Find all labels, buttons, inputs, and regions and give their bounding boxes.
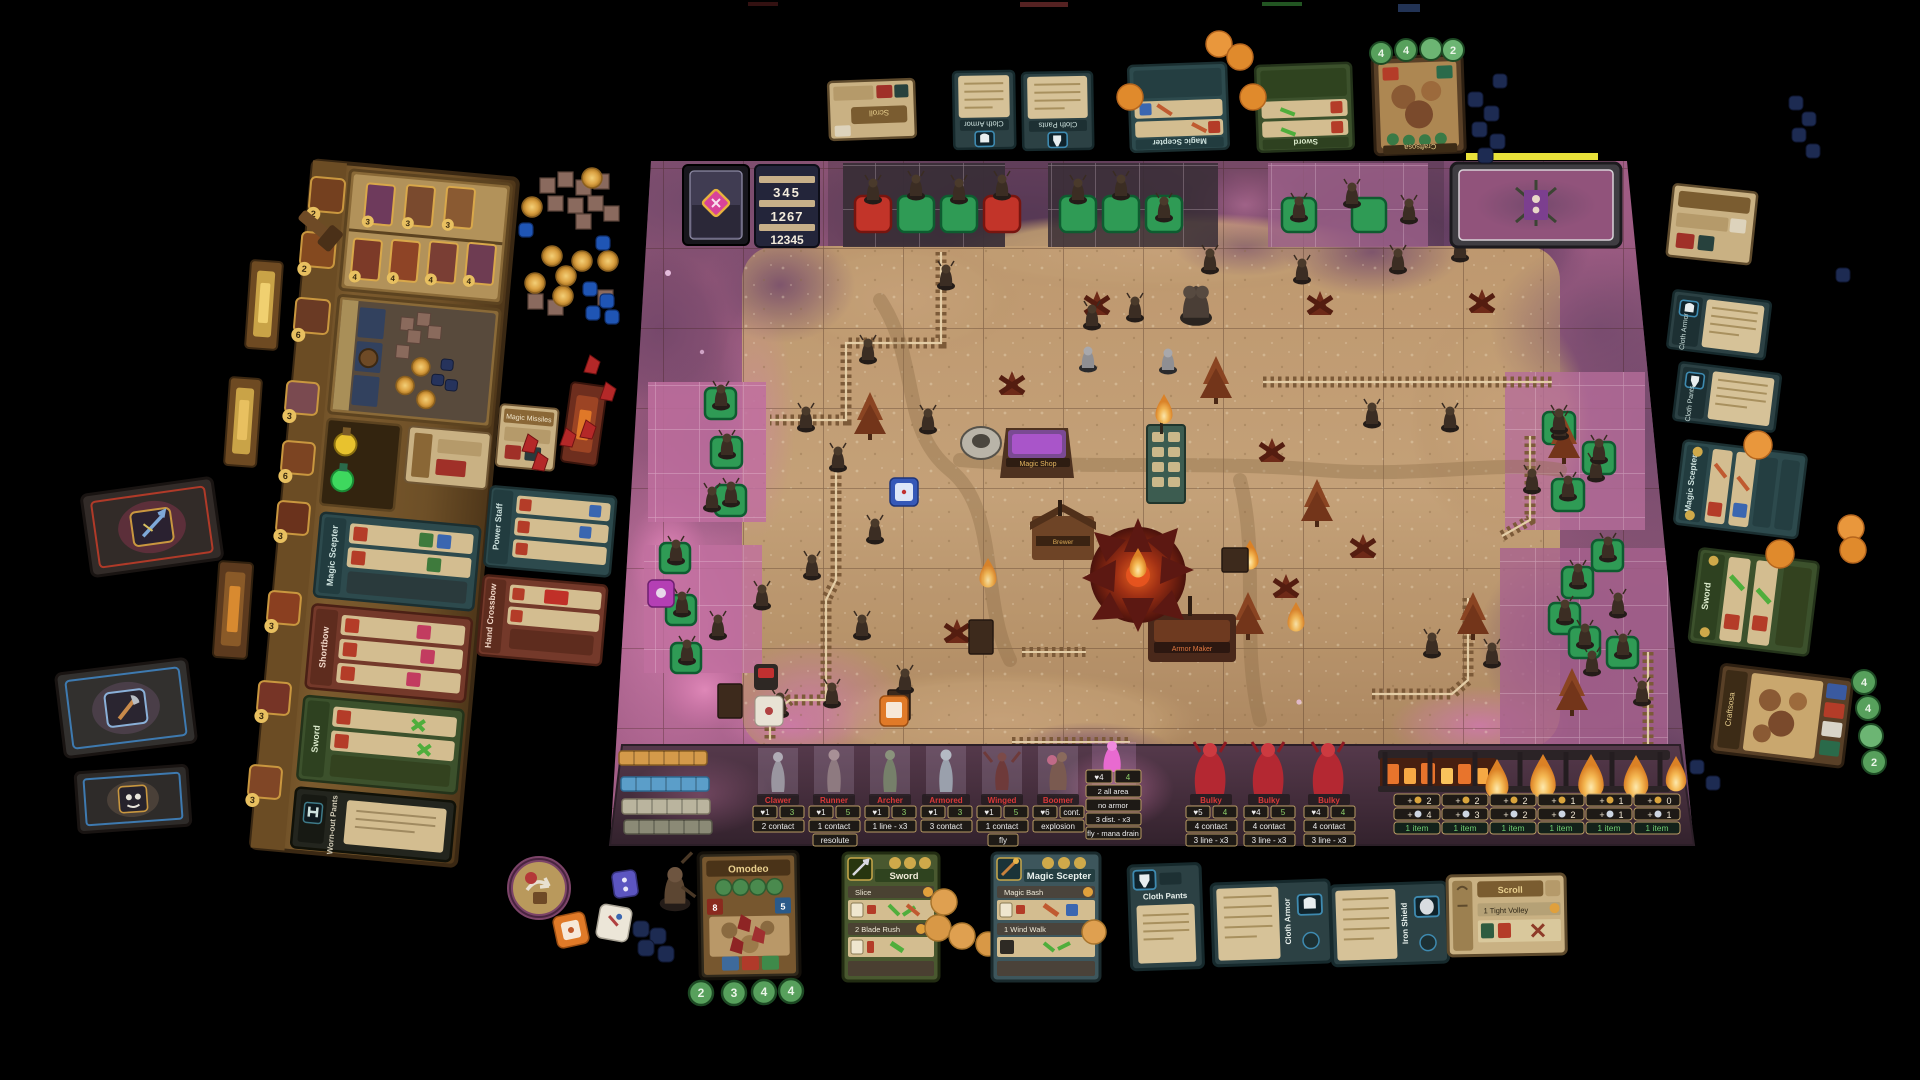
svg-text:Brewer: Brewer: [1053, 539, 1074, 546]
svg-text:+: +: [1551, 810, 1556, 820]
svg-text:3 line - x3: 3 line - x3: [1194, 836, 1229, 845]
svg-text:3: 3: [268, 621, 274, 631]
svg-text:4: 4: [1403, 45, 1410, 57]
svg-text:+: +: [1647, 796, 1652, 806]
svg-text:Cloth Armor: Cloth Armor: [1283, 898, 1294, 945]
svg-text:1 Tight Volley: 1 Tight Volley: [1484, 906, 1529, 916]
svg-text:♥5: ♥5: [1193, 808, 1203, 817]
svg-text:345: 345: [773, 185, 801, 200]
svg-text:1 line - x3: 1 line - x3: [873, 822, 908, 831]
svg-text:3: 3: [790, 808, 795, 817]
svg-text:4: 4: [1341, 808, 1346, 817]
svg-text:1: 1: [1618, 796, 1623, 806]
svg-text:Cloth Pants: Cloth Pants: [1143, 891, 1188, 902]
svg-text:♥1: ♥1: [816, 808, 826, 817]
svg-text:1 contact: 1 contact: [986, 822, 1019, 831]
svg-text:3: 3: [277, 531, 283, 541]
svg-text:4: 4: [1126, 773, 1131, 782]
svg-text:explosion: explosion: [1041, 822, 1075, 831]
svg-text:3: 3: [249, 795, 255, 805]
svg-text:3: 3: [902, 808, 907, 817]
svg-text:2: 2: [1426, 796, 1431, 806]
svg-text:no armor: no armor: [1098, 801, 1129, 810]
svg-text:2: 2: [1522, 796, 1527, 806]
svg-text:1: 1: [1618, 810, 1623, 820]
svg-text:♥1: ♥1: [872, 808, 882, 817]
svg-text:6: 6: [295, 330, 301, 340]
svg-text:♥6: ♥6: [1040, 808, 1050, 817]
svg-text:5: 5: [846, 808, 851, 817]
svg-text:1 item: 1 item: [1453, 823, 1476, 833]
svg-text:2: 2: [301, 264, 307, 274]
svg-text:3: 3: [958, 808, 963, 817]
svg-text:Winged: Winged: [988, 796, 1017, 805]
svg-text:2: 2: [698, 986, 705, 1000]
svg-text:3: 3: [258, 711, 264, 721]
svg-text:3 line - x3: 3 line - x3: [1252, 836, 1287, 845]
svg-text:Scroll: Scroll: [1498, 885, 1523, 895]
svg-text:8: 8: [712, 903, 717, 913]
svg-text:6: 6: [282, 471, 288, 481]
svg-text:Sword: Sword: [1293, 137, 1318, 147]
svg-text:+: +: [1599, 810, 1604, 820]
svg-text:Cloth Armor: Cloth Armor: [964, 119, 1004, 129]
svg-text:♥4: ♥4: [1094, 773, 1104, 782]
svg-text:+: +: [1407, 810, 1412, 820]
svg-text:Scroll: Scroll: [869, 108, 890, 118]
svg-text:Omodeo: Omodeo: [728, 864, 769, 876]
svg-text:♥4: ♥4: [1311, 808, 1321, 817]
svg-text:Sword: Sword: [889, 871, 918, 882]
svg-text:fly - mana drain: fly - mana drain: [1087, 829, 1139, 838]
svg-text:4: 4: [1865, 703, 1872, 715]
svg-text:Armored: Armored: [929, 796, 962, 805]
svg-text:♥4: ♥4: [1251, 808, 1261, 817]
svg-text:1 item: 1 item: [1597, 823, 1620, 833]
svg-text:Bulky: Bulky: [1258, 796, 1280, 805]
svg-text:1267: 1267: [771, 209, 804, 224]
svg-text:1 Wind Walk: 1 Wind Walk: [1004, 925, 1046, 934]
svg-text:Bulky: Bulky: [1318, 796, 1340, 805]
svg-text:5: 5: [1281, 808, 1286, 817]
svg-text:3: 3: [1474, 810, 1479, 820]
svg-text:12345: 12345: [770, 233, 804, 247]
svg-text:Iron Shield: Iron Shield: [1400, 902, 1410, 944]
svg-text:5: 5: [780, 901, 785, 911]
svg-text:Bulky: Bulky: [1200, 796, 1222, 805]
svg-text:5: 5: [1014, 808, 1019, 817]
svg-text:2: 2: [1474, 796, 1479, 806]
svg-text:Runner: Runner: [820, 796, 848, 805]
svg-text:2 all area: 2 all area: [1098, 787, 1130, 796]
svg-text:2 contact: 2 contact: [762, 822, 795, 831]
svg-text:2: 2: [1570, 810, 1575, 820]
svg-text:4: 4: [1426, 810, 1431, 820]
svg-text:Craftsosa: Craftsosa: [1403, 142, 1436, 152]
svg-text:1 item: 1 item: [1645, 823, 1668, 833]
svg-text:4: 4: [1223, 808, 1228, 817]
svg-text:4 contact: 4 contact: [1253, 822, 1286, 831]
svg-text:1 item: 1 item: [1501, 823, 1524, 833]
svg-text:4 contact: 4 contact: [1195, 822, 1228, 831]
svg-text:Magic Scepter: Magic Scepter: [1027, 871, 1092, 882]
svg-text:resolute: resolute: [821, 836, 850, 845]
svg-text:2: 2: [1871, 757, 1877, 769]
svg-text:Magic Bash: Magic Bash: [1004, 888, 1043, 897]
svg-text:fly: fly: [999, 836, 1007, 845]
svg-text:♥1: ♥1: [928, 808, 938, 817]
svg-text:♥1: ♥1: [760, 808, 770, 817]
svg-text:+: +: [1455, 796, 1460, 806]
svg-text:+: +: [1599, 796, 1604, 806]
svg-text:Clawer: Clawer: [765, 796, 791, 805]
svg-text:Magic Shop: Magic Shop: [1020, 461, 1057, 468]
svg-text:4 contact: 4 contact: [1313, 822, 1346, 831]
svg-text:2: 2: [1450, 45, 1456, 57]
svg-text:4: 4: [788, 984, 795, 998]
svg-text:3 line - x3: 3 line - x3: [1312, 836, 1347, 845]
svg-text:+: +: [1551, 796, 1556, 806]
svg-text:1: 1: [1570, 796, 1575, 806]
svg-text:2: 2: [1522, 810, 1527, 820]
svg-text:1 item: 1 item: [1405, 823, 1428, 833]
svg-text:Magic Scepter: Magic Scepter: [1152, 136, 1207, 147]
svg-text:+: +: [1647, 810, 1652, 820]
svg-text:3: 3: [731, 986, 738, 1000]
svg-text:Boomer: Boomer: [1043, 796, 1073, 805]
svg-text:3 dist. - x3: 3 dist. - x3: [1096, 815, 1131, 824]
svg-text:3 contact: 3 contact: [930, 822, 963, 831]
svg-text:0: 0: [1666, 796, 1671, 806]
svg-text:4: 4: [761, 985, 768, 999]
svg-text:+: +: [1455, 810, 1460, 820]
svg-text:♥1: ♥1: [984, 808, 994, 817]
svg-text:1: 1: [1666, 810, 1671, 820]
svg-text:Cloth Pants: Cloth Pants: [1038, 120, 1077, 130]
svg-text:+: +: [1503, 796, 1508, 806]
svg-text:1 item: 1 item: [1549, 823, 1572, 833]
svg-text:3: 3: [286, 411, 292, 421]
svg-text:Slice: Slice: [855, 888, 871, 897]
svg-text:2 Blade Rush: 2 Blade Rush: [855, 925, 900, 934]
svg-text:4: 4: [1861, 677, 1868, 689]
svg-text:1 contact: 1 contact: [818, 822, 851, 831]
svg-text:4: 4: [1378, 48, 1385, 60]
svg-text:Armor Maker: Armor Maker: [1172, 646, 1213, 653]
svg-text:cont.: cont.: [1063, 808, 1080, 817]
svg-text:+: +: [1503, 810, 1508, 820]
svg-text:Archer: Archer: [877, 796, 903, 805]
svg-text:+: +: [1407, 796, 1412, 806]
